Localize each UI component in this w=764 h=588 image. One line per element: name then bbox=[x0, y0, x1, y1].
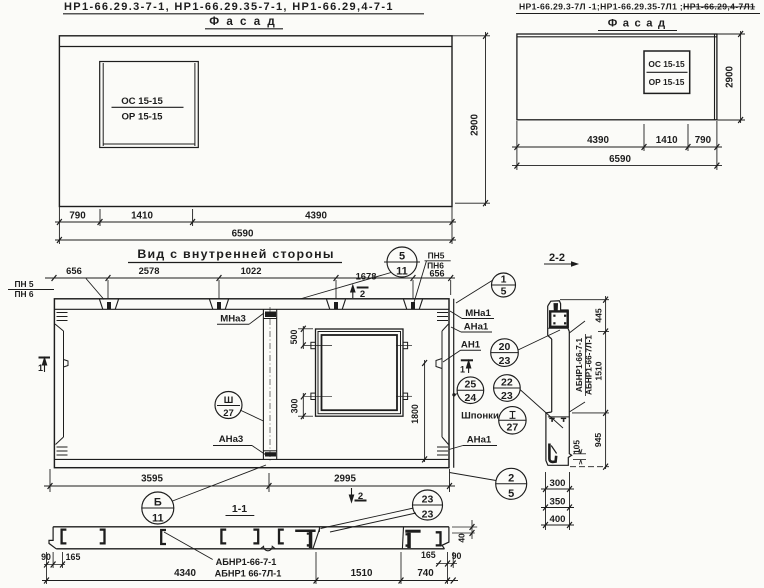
svg-text:6590: 6590 bbox=[609, 154, 631, 165]
svg-text:ПН5: ПН5 bbox=[428, 251, 445, 261]
svg-text:945: 945 bbox=[593, 433, 603, 448]
svg-text:2578: 2578 bbox=[139, 265, 160, 276]
svg-text:27: 27 bbox=[223, 408, 234, 419]
svg-text:790: 790 bbox=[69, 211, 86, 222]
svg-text:1800: 1800 bbox=[410, 404, 420, 424]
svg-text:6590: 6590 bbox=[232, 229, 254, 240]
svg-text:656: 656 bbox=[66, 265, 82, 276]
svg-text:350: 350 bbox=[549, 497, 565, 508]
svg-text:23: 23 bbox=[499, 355, 511, 367]
svg-text:4390: 4390 bbox=[305, 211, 327, 222]
svg-text:АБНР1 66-7Л-1: АБНР1 66-7Л-1 bbox=[215, 569, 282, 579]
svg-text:Ш: Ш bbox=[224, 395, 234, 406]
svg-text:АБНР1-66-7Л-1: АБНР1-66-7Л-1 bbox=[585, 335, 594, 395]
svg-text:24: 24 bbox=[465, 392, 477, 404]
svg-text:105: 105 bbox=[572, 440, 582, 454]
svg-text:АНа1: АНа1 bbox=[464, 322, 489, 333]
svg-text:740: 740 bbox=[417, 568, 434, 579]
svg-text:АН1: АН1 bbox=[461, 340, 481, 351]
svg-text:790: 790 bbox=[695, 135, 712, 146]
svg-text:АНа3: АНа3 bbox=[219, 434, 244, 445]
svg-text:АНа1: АНа1 bbox=[467, 435, 492, 446]
svg-text:4340: 4340 bbox=[174, 568, 196, 579]
svg-text:2-2: 2-2 bbox=[549, 252, 565, 264]
svg-text:ПН 5: ПН 5 bbox=[14, 279, 33, 289]
svg-text:23: 23 bbox=[422, 509, 434, 521]
svg-text:23: 23 bbox=[422, 494, 434, 506]
svg-text:90: 90 bbox=[452, 551, 462, 561]
svg-text:25: 25 bbox=[465, 379, 477, 391]
svg-text:165: 165 bbox=[66, 552, 81, 562]
svg-text:22: 22 bbox=[501, 377, 513, 389]
svg-text:2: 2 bbox=[358, 491, 363, 502]
svg-text:1410: 1410 bbox=[656, 135, 678, 146]
svg-text:445: 445 bbox=[594, 308, 604, 323]
svg-text:2900: 2900 bbox=[725, 66, 736, 88]
svg-text:1410: 1410 bbox=[131, 211, 153, 222]
svg-text:АБНР1-66-7-1: АБНР1-66-7-1 bbox=[216, 557, 277, 567]
svg-text:656: 656 bbox=[429, 269, 444, 279]
svg-text:5: 5 bbox=[508, 488, 514, 500]
svg-text:20: 20 bbox=[499, 341, 511, 353]
svg-text:1022: 1022 bbox=[241, 265, 262, 276]
svg-text:Ф а с а д: Ф а с а д bbox=[608, 18, 667, 30]
svg-text:2: 2 bbox=[508, 472, 514, 484]
svg-text:ПН 6: ПН 6 bbox=[14, 289, 33, 299]
svg-text:1510: 1510 bbox=[351, 568, 373, 579]
svg-text:ОС 15-15: ОС 15-15 bbox=[121, 96, 163, 107]
svg-text:Б: Б bbox=[154, 497, 162, 509]
svg-text:5: 5 bbox=[501, 286, 507, 298]
svg-text:300: 300 bbox=[549, 478, 565, 489]
svg-text:МНа3: МНа3 bbox=[220, 314, 246, 325]
svg-text:5: 5 bbox=[399, 251, 405, 263]
svg-text:300: 300 bbox=[290, 399, 300, 414]
svg-text:90: 90 bbox=[41, 552, 51, 562]
svg-text:МНа1: МНа1 bbox=[465, 308, 491, 319]
svg-text:3595: 3595 bbox=[141, 474, 163, 485]
svg-text:2900: 2900 bbox=[470, 114, 481, 136]
svg-text:400: 400 bbox=[549, 514, 565, 525]
svg-text:2995: 2995 bbox=[334, 474, 356, 485]
svg-text:Ф а с а д: Ф а с а д bbox=[209, 15, 276, 28]
svg-text:40: 40 bbox=[457, 533, 467, 543]
svg-text:АБНР1-66-7-1: АБНР1-66-7-1 bbox=[575, 337, 584, 392]
svg-text:11: 11 bbox=[152, 513, 164, 525]
svg-text:1: 1 bbox=[460, 365, 465, 375]
svg-text:4390: 4390 bbox=[587, 135, 609, 146]
svg-text:500: 500 bbox=[289, 330, 299, 345]
svg-text:1-1: 1-1 bbox=[232, 503, 247, 515]
svg-text:27: 27 bbox=[507, 422, 519, 434]
svg-text:165: 165 bbox=[421, 550, 436, 560]
svg-text:ОС 15-15: ОС 15-15 bbox=[648, 59, 685, 69]
svg-text:НР1-66.29.3-7-1, НР1-66.29.35-: НР1-66.29.3-7-1, НР1-66.29.35-7-1, НР1-6… bbox=[64, 1, 394, 13]
svg-text:11: 11 bbox=[396, 266, 408, 278]
svg-text:1: 1 bbox=[501, 274, 507, 286]
svg-text:НР1-66.29.3-7Л -1;НР1-66.29.35: НР1-66.29.3-7Л -1;НР1-66.29.35-7Л1 ;НР1-… bbox=[519, 2, 755, 12]
svg-text:Вид с внутренней стороны: Вид с внутренней стороны bbox=[137, 247, 334, 261]
svg-text:1: 1 bbox=[38, 363, 43, 373]
svg-text:ОР 15-15: ОР 15-15 bbox=[121, 112, 163, 123]
svg-text:1510: 1510 bbox=[594, 361, 604, 380]
svg-text:ОР 15-15: ОР 15-15 bbox=[649, 77, 685, 87]
svg-text:23: 23 bbox=[501, 390, 513, 402]
svg-text:Шпонки: Шпонки bbox=[461, 411, 499, 422]
